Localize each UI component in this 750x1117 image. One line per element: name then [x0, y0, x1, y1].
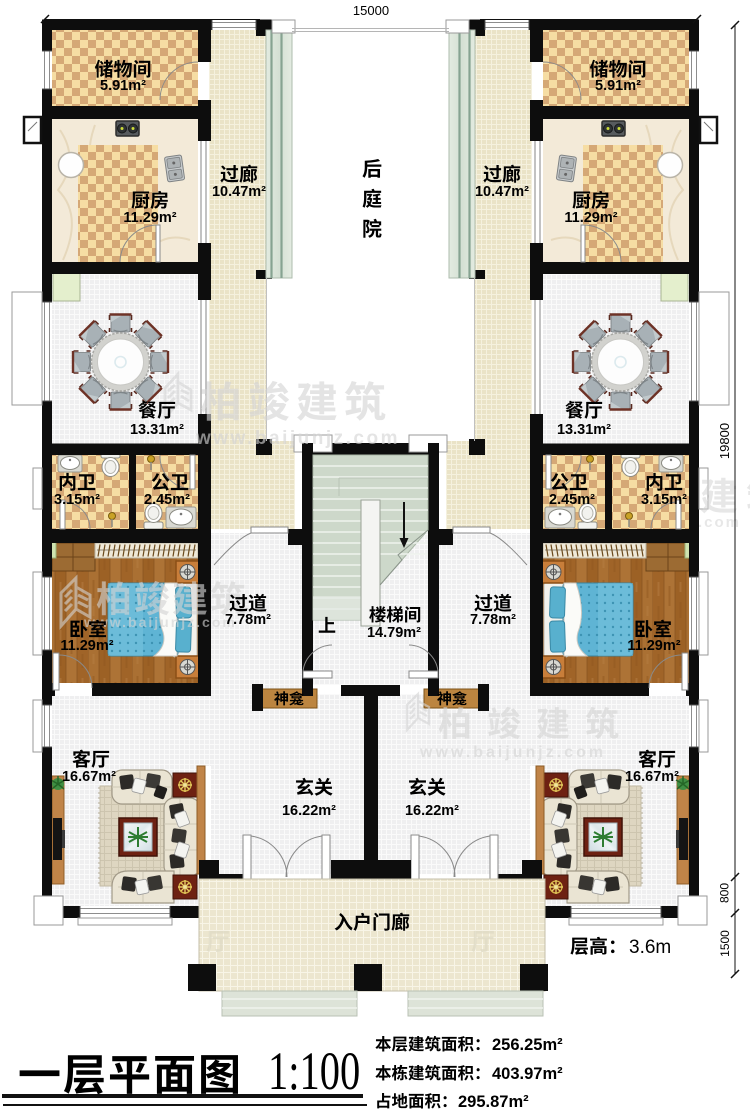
svg-text:16.22m²: 16.22m² — [405, 803, 459, 819]
svg-text:3.15m²: 3.15m² — [54, 492, 100, 508]
svg-text:13.31m²: 13.31m² — [557, 422, 611, 438]
svg-text:10.47m²: 10.47m² — [475, 184, 529, 200]
svg-text:19800: 19800 — [717, 423, 732, 459]
svg-text:2.45m²: 2.45m² — [144, 492, 190, 508]
svg-text:15000: 15000 — [353, 3, 389, 18]
svg-text:16.67m²: 16.67m² — [62, 769, 116, 785]
svg-text:7.78m²: 7.78m² — [470, 612, 516, 628]
svg-text:295.87m²: 295.87m² — [458, 1093, 529, 1111]
svg-text:403.97m²: 403.97m² — [492, 1065, 563, 1083]
svg-text:14.79m²: 14.79m² — [367, 625, 421, 641]
svg-text:13.31m²: 13.31m² — [130, 422, 184, 438]
svg-text:11.29m²: 11.29m² — [564, 210, 617, 226]
svg-text:1500: 1500 — [718, 930, 732, 957]
svg-text:16.67m²: 16.67m² — [625, 769, 679, 785]
svg-text:www.baijunjz.com: www.baijunjz.com — [419, 744, 606, 761]
svg-text:www.baijunjz.com: www.baijunjz.com — [83, 614, 237, 630]
svg-text:16.22m²: 16.22m² — [282, 803, 336, 819]
svg-text:11.29m²: 11.29m² — [60, 638, 113, 654]
svg-text:5.91m²: 5.91m² — [100, 78, 146, 94]
svg-text:10.47m²: 10.47m² — [212, 184, 266, 200]
svg-text:1:100: 1:100 — [268, 1041, 360, 1101]
svg-text:3.15m²: 3.15m² — [641, 492, 687, 508]
svg-text:11.29m²: 11.29m² — [627, 638, 680, 654]
svg-text:2.45m²: 2.45m² — [549, 492, 595, 508]
svg-text:800: 800 — [718, 883, 732, 903]
svg-text:11.29m²: 11.29m² — [123, 210, 176, 226]
svg-text:5.91m²: 5.91m² — [595, 78, 641, 94]
svg-text:256.25m²: 256.25m² — [492, 1036, 563, 1054]
svg-text:7.78m²: 7.78m² — [225, 612, 271, 628]
svg-text:www.baijunjz.com: www.baijunjz.com — [195, 428, 400, 449]
svg-text:3.6m: 3.6m — [629, 937, 671, 958]
